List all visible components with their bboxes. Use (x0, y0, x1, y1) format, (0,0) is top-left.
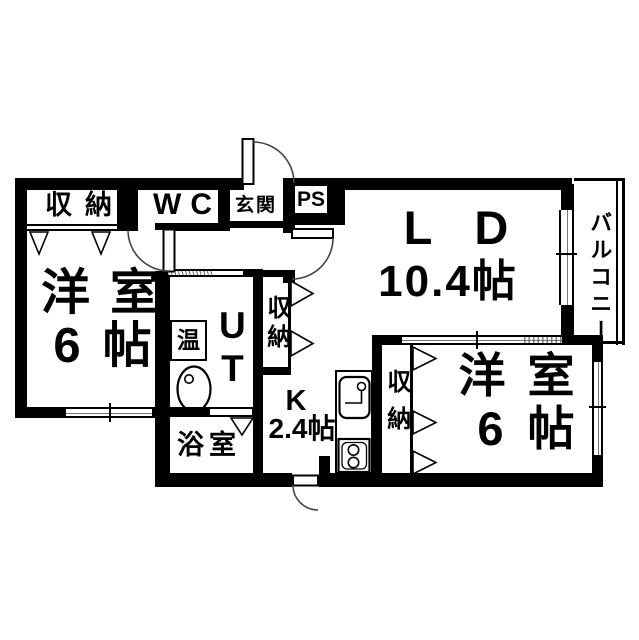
closet-hall-fold-triangles (291, 281, 313, 356)
bedroom-right-label: 洋室 (438, 348, 595, 404)
washbasin (178, 367, 211, 412)
wc-label: WC (138, 187, 227, 224)
ut-label: UT (212, 308, 252, 388)
ld-label: LD (355, 203, 557, 253)
rear-door (293, 476, 318, 511)
closet-hall-label: 収納 (261, 284, 290, 364)
bath-label: 浴室 (165, 428, 253, 464)
entrance-label: 玄関 (229, 191, 283, 221)
bedroom-right-size-label: 6帖 (448, 398, 604, 460)
balcony-label: バルコニー (578, 188, 620, 368)
floor-plan: 収納 WC 玄関 PS LD 10.4帖 バルコニー 洋室 6帖 UT 温 収納… (0, 0, 639, 640)
bedroom-left-size-label: 6帖 (25, 317, 180, 377)
water-heater-label: 温 (170, 320, 207, 361)
closet-nw-label: 収納 (27, 188, 130, 224)
kitchen-size-label: 2.4帖 (258, 412, 346, 446)
entrance-door (243, 139, 295, 184)
bedroom-left-label: 洋室 (25, 266, 175, 322)
ld-size-label: 10.4帖 (358, 257, 538, 307)
ld-door (292, 229, 333, 279)
closet-nw-fold-triangles (30, 232, 110, 254)
ps-label: PS (293, 184, 329, 215)
closet-right-label: 収納 (380, 356, 411, 456)
closet-right-fold-triangles (413, 347, 436, 474)
